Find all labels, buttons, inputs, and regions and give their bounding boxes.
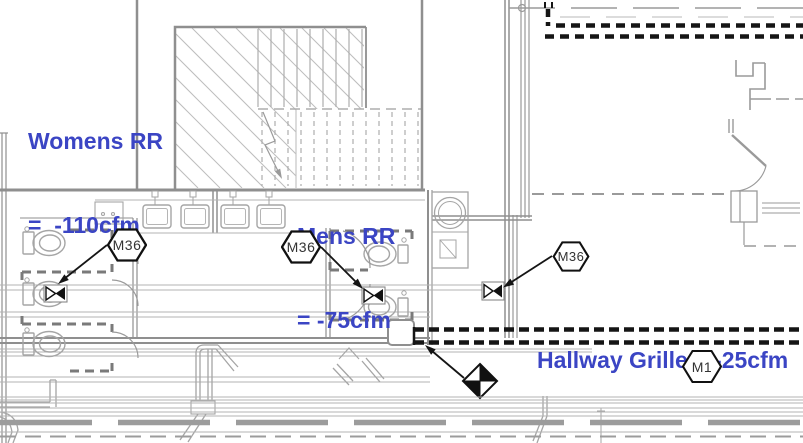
tag-m36-mens: M36 [281, 230, 321, 264]
bottom-corridor-band [0, 397, 803, 437]
tag-label: M36 [287, 239, 316, 255]
tag-label: M36 [558, 249, 585, 264]
top-wall-line [509, 5, 803, 18]
janitor-room [432, 192, 468, 268]
annotation-hallway-grille-label: Hallway Grille = -25cfm [537, 346, 788, 374]
annotation-mens-rr: Mens RR = -75cfm [297, 166, 395, 362]
exhaust-grille-hallway [482, 282, 504, 300]
annotation-hallway-grille: Hallway Grille = -25cfm [537, 290, 788, 402]
right-wall-detail [532, 60, 803, 246]
annotation-mens-rr-line2: = -75cfm [297, 306, 395, 334]
tag-m1: M1 [682, 349, 722, 384]
exhaust-grille-womens [44, 285, 67, 302]
annotation-womens-rr-line1: Womens RR [28, 127, 163, 155]
floor-plan-canvas: Womens RR = -110cfm Mens RR = -75cfm Hal… [0, 0, 803, 443]
tag-m36-hallway: M36 [552, 241, 590, 272]
top-return-duct [545, 2, 803, 37]
flow-diamond-marker [463, 364, 497, 398]
tag-m36-womens: M36 [107, 228, 147, 262]
tag-label: M1 [692, 359, 712, 375]
tag-label: M36 [113, 237, 142, 253]
stair-break-line [263, 112, 282, 179]
